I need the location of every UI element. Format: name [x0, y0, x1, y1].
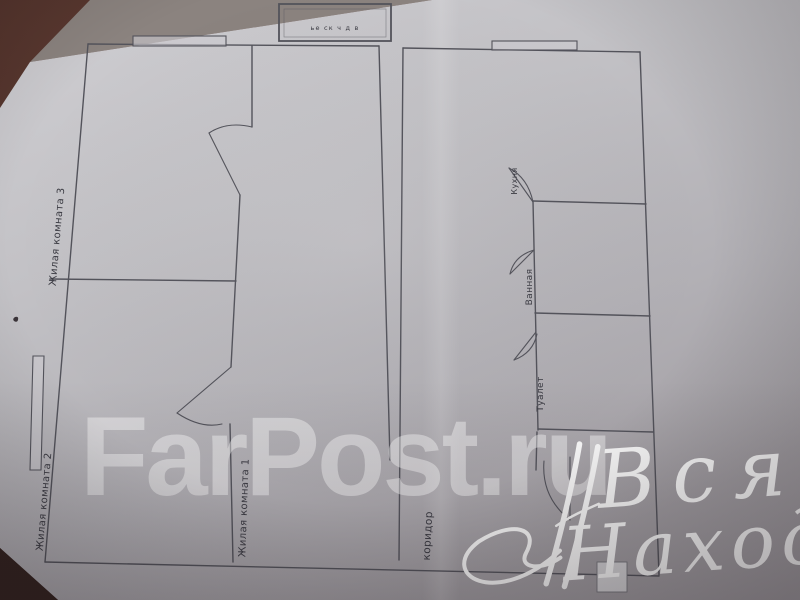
title-block-text: ье ск ч д в [311, 24, 360, 32]
farpost-watermark: FarPost.ru [80, 394, 610, 519]
window-top-right [492, 41, 577, 50]
floor-plan-photo: ье ск ч д в [0, 0, 800, 600]
floor-plan-svg: ье ск ч д в [0, 0, 800, 600]
room-label-kitchen: Кухня [510, 167, 519, 194]
window-left [30, 356, 44, 470]
window-top-left [133, 36, 226, 46]
room-label-bathroom: Ванная [525, 269, 535, 306]
